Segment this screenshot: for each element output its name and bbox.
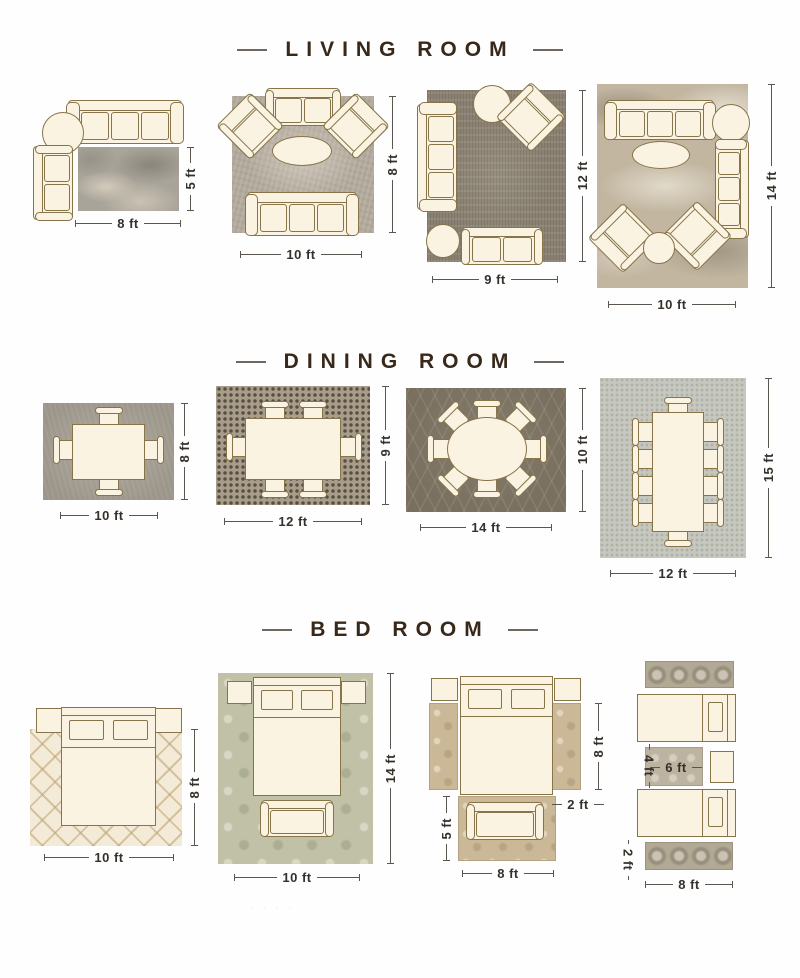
dimension-height: 8 ft bbox=[176, 403, 192, 500]
section-title-text: LIVING ROOM bbox=[285, 38, 514, 62]
twin-bed bbox=[637, 694, 736, 742]
headboard bbox=[461, 677, 552, 685]
dining-table bbox=[72, 424, 145, 480]
dimension-line bbox=[645, 884, 673, 885]
section-title-dining: DINING ROOM bbox=[0, 350, 800, 374]
nightstand bbox=[36, 708, 63, 733]
dimension-height: 12 ft bbox=[574, 90, 590, 262]
title-dash bbox=[508, 629, 538, 631]
dimension-label: 8 ft bbox=[117, 216, 139, 231]
sofa-cushions bbox=[428, 116, 454, 197]
runner-rug bbox=[429, 703, 458, 790]
pillow bbox=[113, 720, 147, 740]
dimension-label: 9 ft bbox=[484, 272, 506, 287]
sofa-arm bbox=[419, 199, 457, 211]
dimension-line bbox=[129, 857, 174, 858]
dimension-label: 14 ft bbox=[471, 520, 500, 535]
chair-back bbox=[95, 489, 123, 496]
bench-back bbox=[268, 801, 325, 809]
cushion bbox=[111, 112, 139, 141]
cushion bbox=[503, 237, 532, 261]
pillow bbox=[301, 690, 333, 710]
sofa-back bbox=[273, 89, 332, 98]
runner-rug bbox=[645, 842, 733, 870]
dining-table bbox=[652, 412, 704, 532]
cushion bbox=[141, 112, 169, 141]
cushion bbox=[317, 204, 344, 233]
dimension-line bbox=[190, 147, 191, 163]
dining-table bbox=[245, 418, 341, 480]
dimension-line bbox=[60, 515, 89, 516]
cushion bbox=[81, 112, 109, 141]
dimension-line bbox=[598, 762, 599, 790]
dimension-label: 14 ft bbox=[383, 754, 398, 783]
cushion bbox=[428, 172, 454, 198]
dimension-width: 2 ft bbox=[552, 797, 604, 811]
dimension-line bbox=[649, 744, 650, 750]
sofa-cushions bbox=[619, 111, 702, 137]
nightstand bbox=[554, 678, 581, 701]
dimension-line bbox=[144, 223, 181, 224]
dimension-width: 12 ft bbox=[610, 566, 736, 580]
dimension-height: 2 ft bbox=[620, 840, 636, 874]
headboard bbox=[62, 708, 155, 716]
dimension-line bbox=[705, 884, 733, 885]
dimension-line bbox=[692, 767, 702, 768]
chair-back bbox=[717, 499, 724, 527]
nightstand bbox=[227, 681, 252, 704]
nightstand bbox=[155, 708, 182, 733]
dimension-label: 12 ft bbox=[658, 566, 687, 581]
sofa-cushions bbox=[260, 204, 344, 233]
dimension-line bbox=[446, 844, 447, 861]
dimension-line bbox=[598, 703, 599, 731]
blanket-line bbox=[254, 717, 340, 718]
dimension-line bbox=[432, 279, 479, 280]
cushion bbox=[275, 98, 302, 122]
section-title-bed: BED ROOM bbox=[0, 618, 800, 642]
sofa-cushions bbox=[472, 237, 533, 261]
cushion bbox=[647, 111, 673, 137]
chair-back bbox=[261, 491, 289, 498]
sofa-cushions bbox=[81, 112, 168, 141]
dimension-line bbox=[582, 388, 583, 430]
sofa-arm bbox=[346, 194, 359, 236]
dimension-height: 5 ft bbox=[438, 796, 454, 861]
bench-arm bbox=[325, 802, 333, 837]
bench-arm bbox=[535, 804, 544, 840]
dimension-line bbox=[771, 206, 772, 288]
cushion bbox=[718, 203, 740, 227]
bench-back bbox=[475, 803, 536, 812]
blanket-line bbox=[702, 790, 703, 836]
dimension-label: 2 ft bbox=[567, 797, 589, 812]
dimension-line bbox=[313, 521, 362, 522]
dimension-line bbox=[628, 876, 629, 880]
cushion bbox=[44, 184, 70, 211]
dimension-label: 12 ft bbox=[575, 161, 590, 190]
dimension-label: 10 ft bbox=[575, 435, 590, 464]
dimension-height: 8 ft bbox=[186, 729, 202, 846]
cushion bbox=[428, 116, 454, 142]
sofa-back bbox=[617, 101, 704, 110]
dimension-line bbox=[392, 96, 393, 149]
dimension-label: 14 ft bbox=[764, 171, 779, 200]
dimension-line bbox=[506, 527, 552, 528]
sofa-back bbox=[740, 150, 748, 229]
bench-cushion bbox=[270, 810, 325, 834]
rug-size-guide-infographic: LIVING ROOM 8 ft 5 ft bbox=[0, 0, 800, 978]
title-dash bbox=[533, 49, 563, 51]
dimension-line bbox=[693, 573, 736, 574]
cushion bbox=[476, 812, 534, 836]
pillow bbox=[708, 702, 724, 731]
oval-coffee-table bbox=[632, 141, 690, 169]
dimension-line bbox=[768, 378, 769, 448]
headboard bbox=[254, 678, 340, 686]
oval-dining-table bbox=[447, 417, 527, 481]
dimension-height: 14 ft bbox=[763, 84, 779, 288]
dimension-line bbox=[650, 767, 660, 768]
cushion bbox=[675, 111, 701, 137]
dimension-line bbox=[610, 573, 653, 574]
cushion bbox=[270, 810, 325, 834]
dimension-label: 8 ft bbox=[678, 877, 700, 892]
dimension-line bbox=[44, 857, 89, 858]
dimension-width: 10 ft bbox=[608, 297, 736, 311]
sofa-arm bbox=[35, 145, 73, 154]
chair-back bbox=[355, 433, 362, 461]
dimension-width: 10 ft bbox=[234, 870, 360, 884]
dimension-height: 10 ft bbox=[574, 388, 590, 512]
sofa bbox=[68, 100, 182, 144]
dimension-line bbox=[582, 470, 583, 512]
loveseat bbox=[462, 227, 542, 265]
dimension-label: 10 ft bbox=[94, 508, 123, 523]
chair-back bbox=[664, 540, 692, 547]
dimension-line bbox=[194, 729, 195, 772]
sofa-cushions bbox=[718, 152, 740, 227]
dimension-line bbox=[594, 804, 604, 805]
dimension-label: 2 ft bbox=[621, 849, 636, 871]
dimension-label: 9 ft bbox=[378, 435, 393, 457]
cushion bbox=[718, 152, 740, 176]
dimension-width: 8 ft bbox=[645, 877, 733, 891]
dimension-width: 8 ft bbox=[75, 216, 181, 230]
headboard bbox=[727, 790, 735, 836]
oval-coffee-table bbox=[272, 136, 332, 166]
pillow bbox=[708, 797, 724, 826]
section-title-living: LIVING ROOM bbox=[0, 38, 800, 62]
cushion bbox=[619, 111, 645, 137]
dimension-label: 8 ft bbox=[497, 866, 519, 881]
dimension-line bbox=[385, 386, 386, 430]
chair-back bbox=[473, 491, 501, 498]
sofa-arm bbox=[604, 102, 617, 140]
blanket-line bbox=[702, 695, 703, 741]
sofa-arm bbox=[35, 212, 73, 221]
sofa bbox=[247, 192, 357, 236]
dimension-label: 10 ft bbox=[94, 850, 123, 865]
dimension-width: 12 ft bbox=[224, 514, 362, 528]
dimension-label: 12 ft bbox=[278, 514, 307, 529]
dimension-label: 5 ft bbox=[183, 168, 198, 190]
twin-bed bbox=[637, 789, 736, 837]
sofa-arm bbox=[534, 229, 543, 265]
blanket-line bbox=[461, 716, 552, 717]
pillow bbox=[468, 689, 502, 709]
title-dash bbox=[534, 361, 564, 363]
dimension-height: 15 ft bbox=[760, 378, 776, 558]
dimension-line bbox=[582, 196, 583, 262]
sofa-cushions bbox=[275, 98, 331, 122]
title-dash bbox=[237, 49, 267, 51]
bed bbox=[460, 676, 553, 795]
cushion bbox=[260, 204, 287, 233]
bench-arm bbox=[466, 804, 475, 840]
dimension-line bbox=[317, 877, 360, 878]
sofa bbox=[417, 104, 457, 210]
chair-back bbox=[717, 445, 724, 473]
dimension-width: 10 ft bbox=[44, 850, 174, 864]
dimension-label: 10 ft bbox=[286, 247, 315, 262]
bed bbox=[253, 677, 341, 796]
pillow bbox=[511, 689, 545, 709]
dimension-width: 14 ft bbox=[420, 520, 552, 534]
dimension-label: 8 ft bbox=[177, 441, 192, 463]
sofa-back bbox=[34, 153, 43, 212]
dimension-line bbox=[628, 840, 629, 844]
pillow bbox=[69, 720, 103, 740]
dimension-height: 5 ft bbox=[182, 147, 198, 211]
bed bbox=[61, 707, 156, 826]
dimension-line bbox=[582, 90, 583, 156]
dimension-label: 10 ft bbox=[657, 297, 686, 312]
cushion bbox=[44, 155, 70, 182]
sofa bbox=[606, 100, 714, 140]
dimension-line bbox=[524, 873, 554, 874]
dimension-line bbox=[129, 515, 158, 516]
dimension-width: 8 ft bbox=[462, 866, 554, 880]
cushion bbox=[472, 237, 501, 261]
round-chair bbox=[712, 104, 750, 142]
dimension-height: 14 ft bbox=[382, 673, 398, 864]
chair-back bbox=[157, 436, 164, 464]
cushion bbox=[428, 144, 454, 170]
dimension-line bbox=[240, 254, 281, 255]
cushion bbox=[289, 204, 316, 233]
dimension-line bbox=[608, 304, 652, 305]
watermark-dots: · · · · bbox=[250, 903, 295, 912]
pillow bbox=[261, 690, 293, 710]
dimension-label: 6 ft bbox=[665, 760, 687, 775]
bench bbox=[261, 800, 333, 837]
rug bbox=[78, 147, 179, 211]
dimension-label: 8 ft bbox=[591, 736, 606, 758]
dimension-width: 10 ft bbox=[60, 508, 158, 522]
dimension-height: 9 ft bbox=[377, 386, 393, 505]
round-ottoman bbox=[643, 232, 675, 264]
dimension-line bbox=[390, 788, 391, 864]
dimension-line bbox=[649, 782, 650, 788]
sofa-arm bbox=[419, 102, 457, 114]
bench-cushion bbox=[476, 812, 534, 836]
dimension-label: 8 ft bbox=[385, 154, 400, 176]
dimension-line bbox=[446, 796, 447, 813]
dimension-width: 10 ft bbox=[240, 247, 362, 261]
runner-rug bbox=[552, 703, 581, 790]
headboard bbox=[727, 695, 735, 741]
dimension-line bbox=[194, 803, 195, 846]
dimension-line bbox=[190, 195, 191, 211]
dimension-line bbox=[184, 403, 185, 436]
chair-back bbox=[540, 435, 547, 463]
dimension-line bbox=[771, 84, 772, 166]
sofa-arm bbox=[170, 102, 183, 144]
dimension-line bbox=[75, 223, 112, 224]
dimension-label: 10 ft bbox=[282, 870, 311, 885]
dimension-width: 9 ft bbox=[432, 272, 558, 286]
dimension-label: 8 ft bbox=[187, 777, 202, 799]
sofa-back bbox=[258, 193, 347, 203]
section-title-text: BED ROOM bbox=[310, 618, 490, 642]
dimension-line bbox=[184, 467, 185, 500]
dimension-line bbox=[420, 527, 466, 528]
dimension-label: 5 ft bbox=[439, 818, 454, 840]
dimension-line bbox=[385, 461, 386, 505]
dimension-line bbox=[511, 279, 558, 280]
dimension-label: 15 ft bbox=[761, 453, 776, 482]
dimension-line bbox=[392, 180, 393, 233]
chaise-sofa bbox=[33, 146, 73, 220]
sofa-back bbox=[470, 228, 534, 237]
chair-back bbox=[717, 472, 724, 500]
cushion bbox=[718, 177, 740, 201]
sofa-cushions bbox=[44, 155, 70, 211]
round-ottoman bbox=[426, 224, 460, 258]
bench-arm bbox=[260, 802, 268, 837]
dimension-height: 8 ft bbox=[384, 96, 400, 233]
dimension-line bbox=[234, 877, 277, 878]
dimension-height: 8 ft bbox=[590, 703, 606, 790]
dimension-line bbox=[552, 804, 562, 805]
dimension-width: 6 ft bbox=[650, 760, 702, 774]
nightstand bbox=[431, 678, 458, 701]
sofa-arm bbox=[245, 194, 258, 236]
sofa-arm bbox=[461, 229, 470, 265]
dimension-line bbox=[321, 254, 362, 255]
chair-back bbox=[299, 491, 327, 498]
sofa-arm bbox=[715, 139, 747, 151]
dimension-line bbox=[390, 673, 391, 749]
sofa-back bbox=[79, 101, 171, 111]
nightstand bbox=[341, 681, 366, 704]
nightstand bbox=[710, 751, 734, 783]
dimension-line bbox=[692, 304, 736, 305]
dimension-line bbox=[224, 521, 273, 522]
dimension-line bbox=[768, 488, 769, 558]
chair-back bbox=[717, 418, 724, 446]
section-title-text: DINING ROOM bbox=[284, 350, 517, 374]
sofa-back bbox=[418, 114, 427, 199]
dimension-line bbox=[462, 873, 492, 874]
runner-rug bbox=[645, 661, 734, 688]
blanket-line bbox=[62, 747, 155, 748]
bench bbox=[467, 802, 543, 840]
title-dash bbox=[262, 629, 292, 631]
title-dash bbox=[236, 361, 266, 363]
